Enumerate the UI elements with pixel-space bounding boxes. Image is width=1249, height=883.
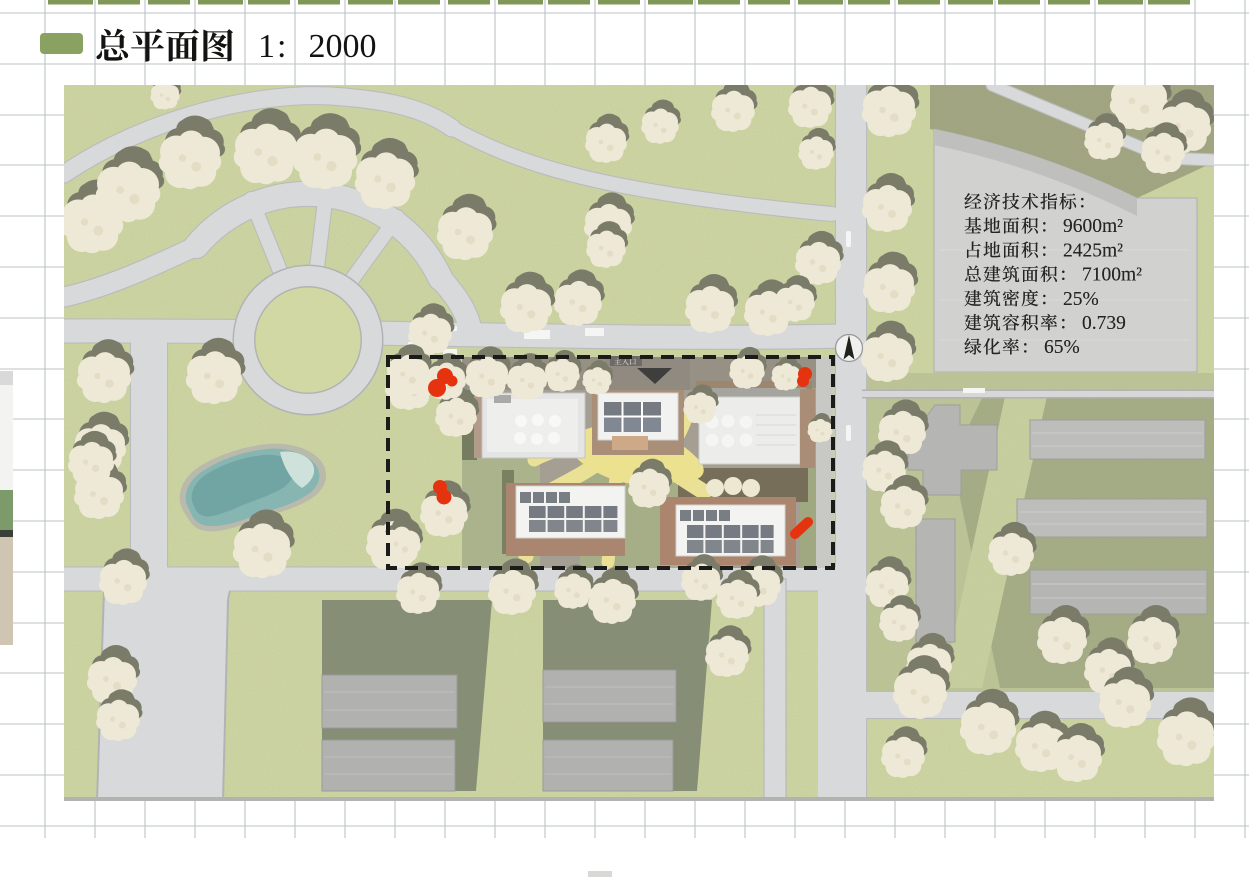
svg-text:25%: 25% [1063, 289, 1099, 310]
svg-text:65%: 65% [1044, 337, 1080, 358]
svg-text:7100m²: 7100m² [1082, 265, 1142, 286]
svg-text:9600m²: 9600m² [1063, 216, 1123, 237]
svg-text:2425m²: 2425m² [1063, 240, 1123, 261]
svg-text:0.739: 0.739 [1082, 313, 1126, 334]
